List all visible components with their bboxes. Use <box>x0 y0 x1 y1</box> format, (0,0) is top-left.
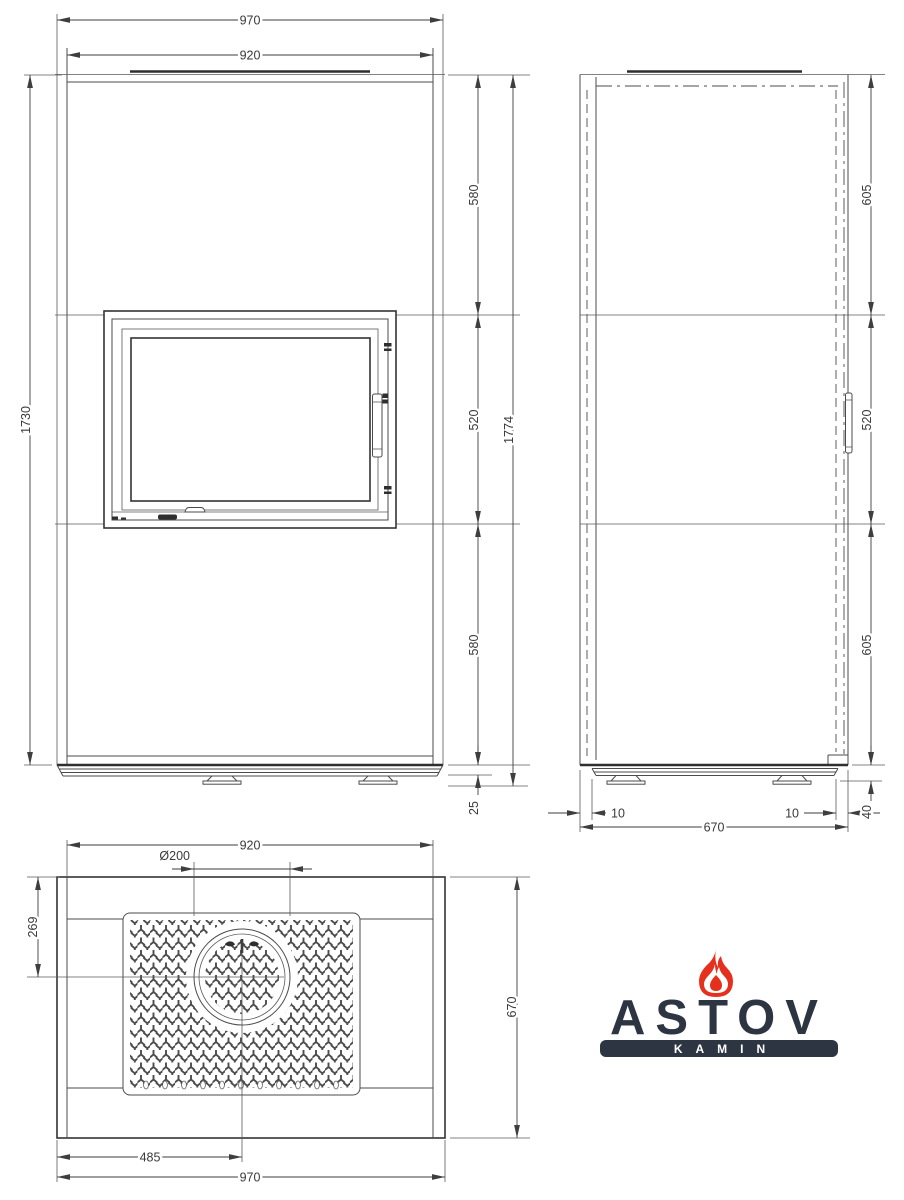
dim-top-flue-offset: 269 <box>26 917 40 938</box>
dim-side-seg-mid: 520 <box>860 410 874 431</box>
dim-side-seg-bot: 605 <box>860 635 874 656</box>
dim-side-inset-left: 10 <box>611 807 625 821</box>
brand-sub-name: KAMIN <box>674 1042 778 1056</box>
dim-front-width-top: 970 <box>240 14 261 28</box>
dim-front-height-overall: 1774 <box>502 416 516 444</box>
side-dimensions: 605 520 605 10 10 670 40 <box>548 75 885 835</box>
brand-name: ASTOV <box>610 991 828 1045</box>
dim-front-height-left: 1730 <box>19 406 33 434</box>
side-outline-lines <box>580 72 885 776</box>
dim-top-flue-center-x: 485 <box>140 1151 161 1165</box>
dim-front-seg-bot: 580 <box>467 635 481 656</box>
brand-logo: ASTOV KAMIN <box>600 948 838 1057</box>
dim-side-base-height: 40 <box>860 805 874 819</box>
side-door-handle <box>846 393 853 453</box>
side-feet <box>607 776 811 785</box>
dim-front-seg-top: 580 <box>467 185 481 206</box>
dim-top-width-body: 920 <box>240 839 261 853</box>
side-view: 605 520 605 10 10 670 40 <box>548 72 885 835</box>
dim-side-inset-right: 10 <box>785 807 799 821</box>
stove-drawing: 970 920 1730 580 520 580 1774 25 <box>0 0 904 1200</box>
fire-door <box>104 311 396 528</box>
top-view: 920 Ø200 269 670 485 970 <box>26 839 530 1185</box>
dim-top-depth: 670 <box>505 997 519 1018</box>
dim-top-flue-diameter: Ø200 <box>159 849 190 863</box>
technical-drawing-page: 970 920 1730 580 520 580 1774 25 <box>0 0 904 1200</box>
front-view: 970 920 1730 580 520 580 1774 25 <box>19 14 530 815</box>
dim-side-depth: 670 <box>704 821 725 835</box>
front-feet <box>203 776 397 784</box>
dim-front-seg-mid: 520 <box>467 410 481 431</box>
dim-front-width-body: 920 <box>240 49 261 63</box>
flame-icon <box>699 948 733 997</box>
dim-top-width-total: 970 <box>240 1171 261 1185</box>
dim-side-seg-top: 605 <box>860 185 874 206</box>
dim-front-base-height: 25 <box>467 801 481 815</box>
